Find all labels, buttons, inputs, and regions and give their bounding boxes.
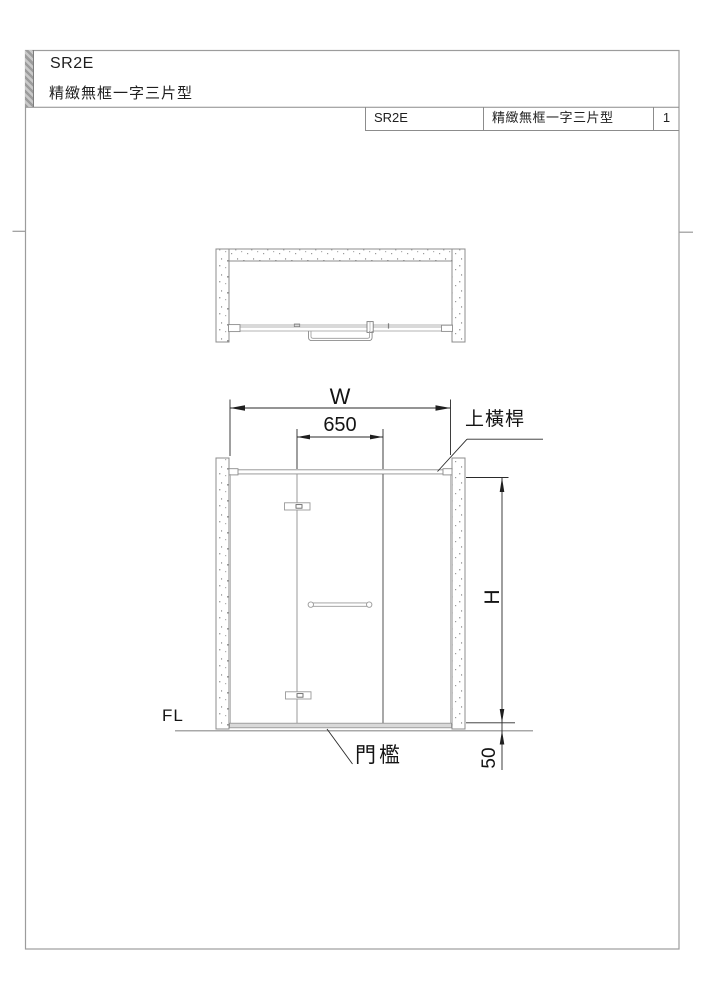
plan-wall-clamp-right bbox=[442, 325, 453, 331]
plan-wall-top bbox=[216, 249, 465, 261]
elev-top-bar bbox=[229, 469, 452, 475]
fold-marks bbox=[13, 231, 694, 232]
leader-sill bbox=[327, 729, 353, 764]
plan-view-drawing bbox=[216, 249, 465, 342]
document-subtitle: 精緻無框一字三片型 bbox=[49, 82, 193, 103]
header-cell-model: SR2E bbox=[365, 107, 483, 130]
header-cell-name: 精緻無框一字三片型 bbox=[483, 107, 653, 130]
drawing-sheet: SR2E 精緻無框一字三片型 SR2E 精緻無框一字三片型 1 W 650 上橫… bbox=[0, 0, 705, 1000]
dim-label-sill-height: 50 bbox=[479, 736, 501, 780]
header-cell-sheet-number: 1 bbox=[653, 107, 679, 130]
header-table: SR2E 精緻無框一字三片型 1 bbox=[365, 107, 679, 131]
elev-glass-panels bbox=[231, 474, 451, 723]
plan-wall-right bbox=[452, 249, 465, 342]
elev-wall-right bbox=[452, 458, 465, 729]
elev-hinge-bottom bbox=[286, 692, 312, 699]
binding-hatch-strip bbox=[25, 50, 34, 107]
label-top-bar: 上橫桿 bbox=[465, 404, 525, 431]
elev-hinge-top bbox=[285, 503, 311, 510]
plan-handle bbox=[309, 331, 373, 341]
plan-wall-clamp-left bbox=[229, 325, 241, 332]
document-title: SR2E bbox=[50, 55, 94, 73]
elev-sill bbox=[230, 723, 452, 728]
elev-handle bbox=[308, 602, 372, 607]
plan-wall-left bbox=[216, 249, 229, 342]
elev-wall-left bbox=[216, 458, 229, 729]
dim-label-height: H bbox=[481, 575, 505, 619]
dim-label-door-opening: 650 bbox=[297, 414, 383, 437]
dim-label-width: W bbox=[230, 384, 450, 410]
label-sill: 門檻 bbox=[355, 739, 403, 769]
label-floor-level: FL bbox=[162, 706, 184, 726]
drawing-canvas bbox=[0, 0, 705, 1000]
plan-glass-track bbox=[229, 322, 453, 333]
sheet-border bbox=[26, 51, 680, 950]
elevation-drawing bbox=[175, 458, 533, 731]
